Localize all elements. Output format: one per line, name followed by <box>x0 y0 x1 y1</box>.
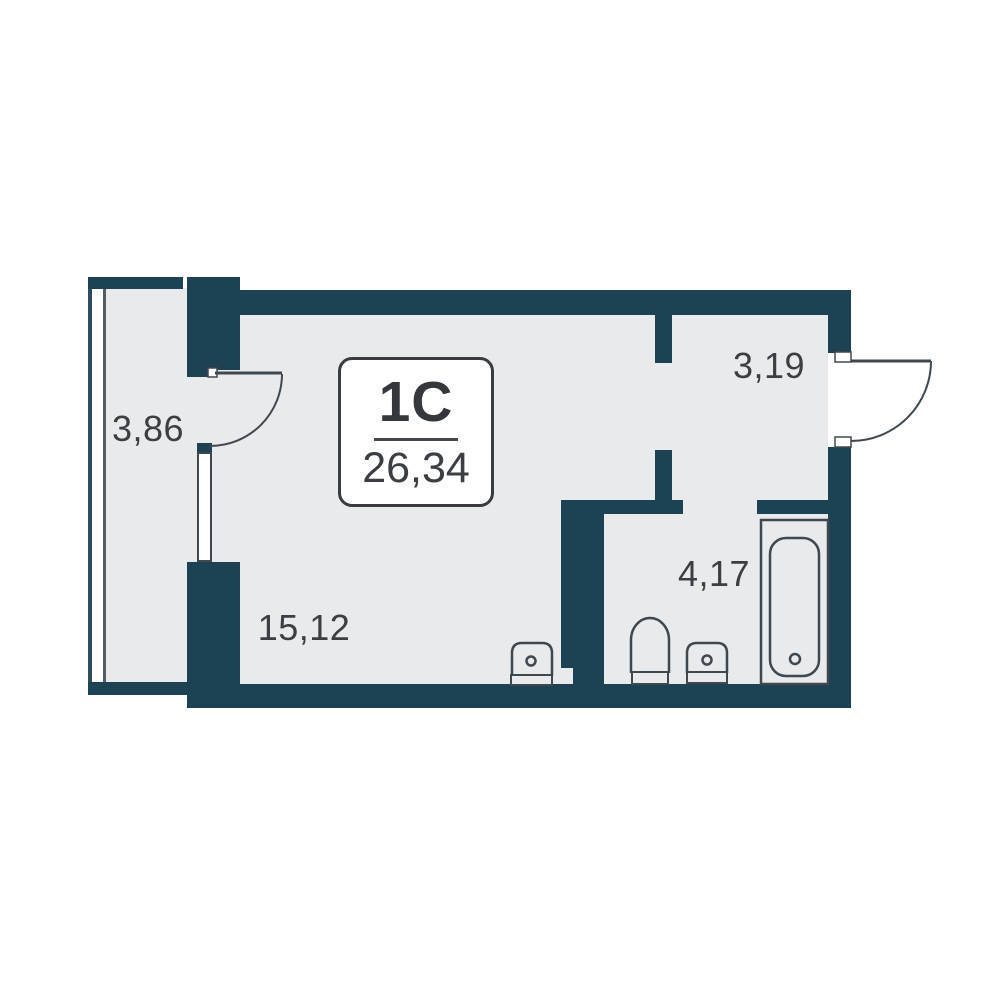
unit-label-divider <box>374 438 458 441</box>
bathroom-sink <box>687 643 727 673</box>
kitchen-sink-faucet <box>527 657 536 666</box>
entrance-door-arc <box>851 361 931 441</box>
entrance-door-jamb-bottom <box>835 437 851 447</box>
toilet <box>631 618 669 673</box>
kitchen-sink-base <box>511 675 552 685</box>
unit-label-box: 1С 26,34 <box>338 357 494 507</box>
bathtub-drain <box>790 654 800 664</box>
entrance-door-jamb-top <box>835 352 851 362</box>
bathtub-inner <box>770 538 819 676</box>
unit-area-label: 26,34 <box>362 447 470 490</box>
hallway-area-label: 3,19 <box>733 345 805 387</box>
fixtures-overlay <box>0 0 1000 1000</box>
balcony-area-label: 3,86 <box>112 408 184 450</box>
bathroom-sink-faucet <box>703 656 712 665</box>
balcony-door-arc <box>210 374 282 446</box>
bathroom-sink-base <box>687 672 727 683</box>
kitchen-sink <box>512 643 552 676</box>
living-area-label: 15,12 <box>258 607 351 649</box>
unit-type-label: 1С <box>379 374 454 431</box>
toilet-base <box>632 672 668 684</box>
floor-plan: 1С 26,34 3,86 3,19 15,12 4,17 <box>0 0 1000 1000</box>
bathroom-area-label: 4,17 <box>678 553 750 595</box>
